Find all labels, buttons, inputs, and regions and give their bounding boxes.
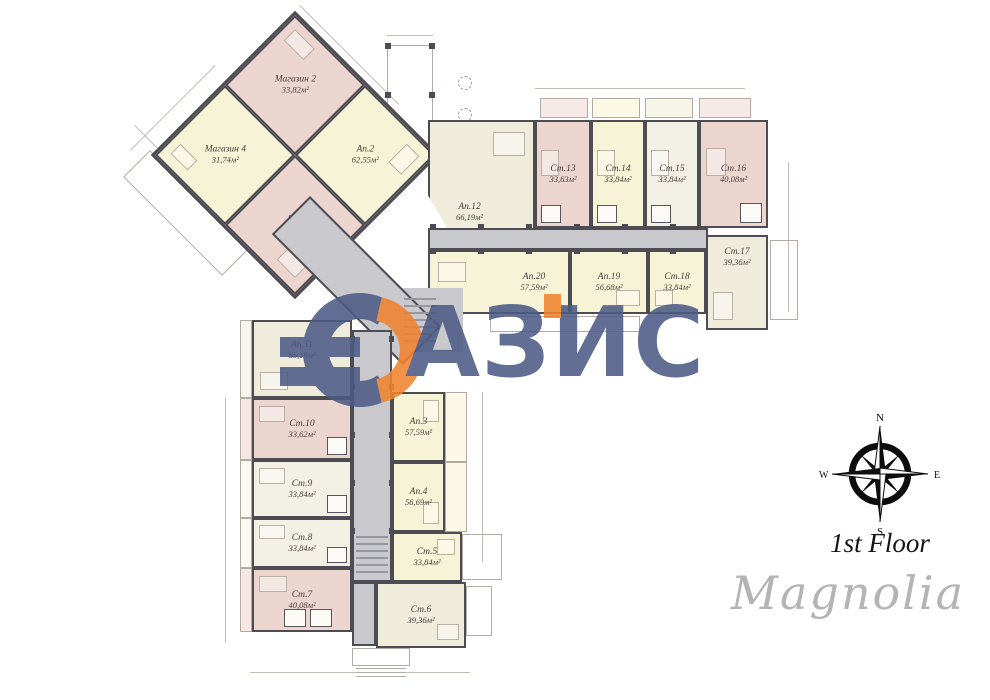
room-st8: Ст.8 33,84м² — [252, 518, 352, 568]
column — [429, 92, 435, 98]
room-label: Ст.7 40,08м² — [288, 590, 315, 610]
terrace — [462, 534, 502, 580]
room-label: Ап.2 62,55м² — [351, 145, 378, 165]
room-st17: Ст.17 39,36м² — [706, 235, 768, 330]
column — [385, 43, 391, 49]
room-label: Ст.6 39,36м² — [407, 605, 434, 625]
balcony — [645, 98, 693, 118]
room-label: Ст.5 33,84м² — [413, 547, 440, 567]
compass-east-label: E — [934, 470, 940, 481]
room-label: Ап.12 66,19м² — [456, 202, 483, 222]
balcony — [445, 462, 467, 532]
column-row — [350, 336, 355, 576]
staircase — [404, 298, 436, 342]
dimension-line — [387, 35, 433, 36]
room-label: Ст.17 39,36м² — [723, 247, 750, 267]
room-label: Ст.14 33,84м² — [604, 164, 631, 184]
room-st13: Ст.13 33,63м² — [535, 120, 591, 228]
room-label: Ст.13 33,63м² — [549, 164, 576, 184]
balcony — [240, 518, 252, 568]
room-label: Ап.11 66,19м² — [288, 340, 315, 360]
corridor-east-wing — [428, 228, 708, 250]
balcony — [699, 98, 751, 118]
room-st9: Ст.9 33,84м² — [252, 460, 352, 518]
entrance-vestibule — [352, 582, 376, 646]
compass-north-label: N — [876, 412, 884, 424]
column-row — [430, 224, 706, 229]
room-label: Магазин 4 31,74м² — [204, 145, 245, 165]
room-label: Ст.16 40,08м² — [720, 164, 747, 184]
room-ap4: Ап.4 56,69м² — [392, 462, 445, 532]
room-st7: Ст.7 40,08м² — [252, 568, 352, 632]
compass-west-label: W — [819, 470, 829, 481]
room-label: Ст.8 33,84м² — [288, 533, 315, 553]
room-ap19: Ап.19 56,68м² — [570, 250, 648, 314]
floor-plan-canvas: Магазин 2 33,82м² Ап.2 62,55м² Магазин 4… — [0, 0, 990, 700]
room-st14: Ст.14 33,84м² — [591, 120, 645, 228]
column — [385, 92, 391, 98]
room-st18: Ст.18 33,84м² — [648, 250, 706, 314]
room-ap3: Ап.3 57,59м² — [392, 392, 445, 462]
dimension-line — [535, 88, 745, 89]
staircase — [356, 536, 388, 578]
room-ap11: Ап.11 66,19м² — [252, 320, 352, 398]
room-label: Ап.4 56,69м² — [405, 487, 432, 507]
room-label: Ап.20 57,59м² — [520, 272, 547, 292]
room-label: Ст.15 33,84м² — [658, 164, 685, 184]
entrance-steps — [356, 668, 406, 680]
entrance-porch — [352, 648, 410, 666]
plant-icon — [458, 108, 472, 122]
room-label: Ст.9 33,84м² — [288, 479, 315, 499]
room-label: Ап.19 56,68м² — [595, 272, 622, 292]
column-row — [430, 249, 706, 254]
room-st5: Ст.5 33,84м² — [392, 532, 462, 582]
room-st10: Ст.10 33,62м² — [252, 398, 352, 460]
room-label: Магазин 2 33,82м² — [274, 75, 315, 95]
room-st6: Ст.6 39,36м² — [376, 582, 466, 648]
balcony — [240, 460, 252, 518]
column-row — [389, 336, 394, 576]
terrace — [466, 586, 492, 636]
column — [429, 43, 435, 49]
balcony — [240, 320, 252, 398]
terrace — [490, 316, 640, 332]
room-st15: Ст.15 33,84м² — [645, 120, 699, 228]
room-label: Ап.3 57,59м² — [405, 417, 432, 437]
room-label: Ст.10 33,62м² — [288, 419, 315, 439]
balcony — [592, 98, 640, 118]
balcony — [240, 398, 252, 460]
terrace — [770, 240, 798, 320]
room-label: Ст.18 33,84м² — [663, 272, 690, 292]
balcony — [445, 392, 467, 462]
dimension-line — [225, 398, 226, 643]
balcony — [240, 568, 252, 632]
project-title: Magnolia — [706, 566, 990, 620]
floor-title: 1st Floor — [810, 528, 950, 559]
balcony — [540, 98, 588, 118]
compass-rose-icon: N E S W — [818, 412, 942, 542]
room-st16: Ст.16 40,08м² — [699, 120, 768, 228]
plant-icon — [458, 76, 472, 90]
